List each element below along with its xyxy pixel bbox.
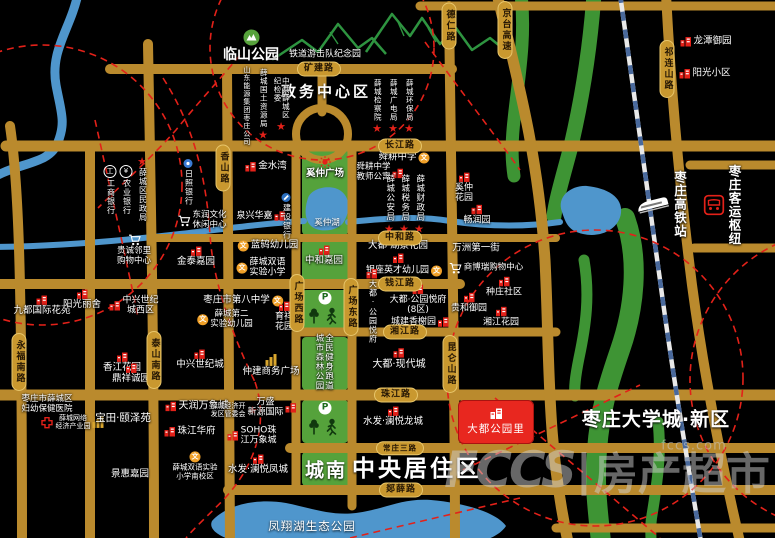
poi-guotu-ziyuanju: 薛城国土资源局★	[258, 68, 268, 140]
poi-label: 纪检委	[273, 77, 281, 120]
poi-shuiwuju: 薛城税务局★	[399, 174, 409, 234]
poi-label: 景惠嘉园	[111, 470, 149, 481]
star-icon: ★	[258, 129, 268, 140]
parking-icon: P	[319, 292, 332, 305]
poi-label: 宝田·颐泽苑	[95, 412, 151, 424]
poi-zhongxing-shijicheng: 中兴世纪城	[176, 349, 224, 371]
building-icon	[318, 245, 329, 255]
poi-label: 新源国际	[247, 408, 283, 418]
poi-xizhong-plaza: 奚仲广场	[306, 156, 344, 180]
poi-label: 薛城区民政局	[138, 168, 147, 222]
star-icon: ★	[137, 156, 147, 167]
road-label-kunlunshan: 昆仑山路	[443, 335, 458, 393]
poi-label: 休闲中心	[192, 221, 226, 231]
map-canvas: 矿建路长江路中和路钱江路湘江路珠江路常庄三路郯薛路德仁路京台高速祁连山路香山路永…	[0, 0, 775, 538]
park-icon	[243, 29, 260, 46]
poi-guicheng-mall: 贵诚邻里购物中心	[117, 233, 151, 267]
poi-jinghui-jiayuan: 景惠嘉园	[111, 470, 149, 481]
building-icon	[245, 162, 256, 172]
poi-label: 薛城环保局	[405, 79, 413, 122]
poi-park-south-parking: P	[319, 402, 332, 415]
poi-yangguang-lishe: 阳光丽舍	[63, 289, 101, 311]
fitness-trail-icon	[308, 419, 342, 436]
poi-label: 中兴世纪城	[176, 360, 224, 371]
poi-shangborui-mall: 商博瑞购物中心	[449, 262, 524, 275]
road-label-xiangjiang: 湘江路	[383, 325, 427, 340]
area-label-tiedao-park: 铁道游击队纪念园	[289, 47, 361, 60]
building-icon	[36, 295, 47, 305]
road-label-changzhuang: 常庄三路	[376, 441, 424, 455]
poi-soho-wanxiang: SOHO珠江万象城	[227, 426, 276, 447]
poi-linshan-park: 临山公园	[223, 29, 279, 63]
poi-park-south-fitness	[308, 419, 342, 436]
poi-dongrun-center: 东润文化休闲中心	[177, 211, 226, 231]
poi-jinshuiwan: 金水湾	[245, 162, 287, 173]
building-icon	[490, 408, 503, 419]
star-icon: ★	[372, 122, 382, 133]
poi-label: 奚仲	[455, 183, 473, 193]
poi-label: 日照银行	[184, 170, 193, 206]
shopping-cart-icon	[177, 215, 190, 228]
poi-gonganju: 薛城公安局★	[384, 174, 394, 234]
area-label-fengxianghu: 凤翔湖生态公园	[268, 518, 356, 534]
poi-shandong-nengyuan: 山东能源集团枣庄公司	[242, 66, 250, 146]
road-label-gcxi: 广场西路	[290, 274, 305, 332]
poi-dadu-xiandaicheng: 大都·现代城	[372, 348, 425, 371]
building-icon	[164, 427, 175, 437]
poi-label: 城西区	[127, 306, 154, 316]
poi-label: 珠江华府	[177, 427, 215, 438]
poi-label: 万洲第一街	[452, 244, 500, 255]
building-icon	[116, 352, 127, 362]
building-icon	[227, 431, 238, 441]
poi-zhongzhuang-shequ: 种庄社区	[486, 276, 522, 297]
poi-label: 畅润园	[463, 215, 490, 225]
bank-dot-icon	[183, 159, 193, 169]
road-label-deren: 德仁路	[442, 3, 457, 50]
poi-label: 仲建商务广场	[242, 367, 299, 378]
watermark-separator: |	[576, 445, 592, 496]
poi-xiangjiang-huayuan: 湘江花园	[483, 306, 519, 327]
poi-label: 建设银行	[282, 204, 291, 240]
poi-jijianwei: 中共薛城区纪检委★	[273, 77, 290, 132]
building-icon	[679, 69, 690, 79]
area-label-zhengwu-center: 政务中心区	[281, 81, 371, 102]
school-icon: 文	[419, 153, 430, 164]
poi-zhonghe-jiayuan: 中和嘉园	[305, 245, 343, 267]
poi-label: 薛城税务局	[399, 174, 409, 222]
poi-label: 水发·澜悦凤城	[228, 465, 288, 476]
poi-jiudu-huayuan: 九都国际花苑	[13, 295, 70, 317]
shopping-cart-icon	[127, 233, 140, 246]
poi-label: 江万象城	[240, 436, 276, 446]
building-icon	[458, 172, 469, 182]
poi-rizhao-bank: 日照银行	[183, 159, 193, 206]
poi-guihe-yuyuan: 贵和御园	[451, 292, 487, 313]
star-icon: ★	[276, 120, 286, 131]
school-icon: 文	[238, 241, 249, 252]
school-icon: 文	[190, 451, 201, 462]
building-icon	[166, 401, 177, 411]
poi-xc2-kindergarten: 文薛城第二实验幼儿园	[197, 310, 253, 330]
poi-shuangyu-school: 文薛城双语实验小学	[236, 258, 285, 279]
poi-label: 经济产业园	[56, 422, 91, 430]
poi-label: 枣庄高铁站	[672, 170, 686, 238]
road-label-zhonghe: 中和路	[378, 231, 422, 246]
poi-label: 枣庄市第八中学	[203, 296, 270, 307]
poi-zhujiang-huafu: 珠江华府	[164, 427, 215, 438]
road-label-zhujiang: 珠江路	[374, 388, 418, 403]
poi-shuangyu-south: 文薛城双语实验小学南校区	[173, 451, 218, 480]
building-icon	[367, 269, 378, 279]
poi-zhongjian-plaza: 仲建商务广场	[242, 354, 299, 378]
area-label-daxuecheng: 枣庄大学城·新区	[582, 405, 730, 432]
poi-label: 发区管委会	[211, 410, 246, 418]
poi-label: 薛城双语	[249, 258, 285, 268]
school-icon: 文	[197, 315, 208, 326]
watermark-logo: FCCS | 房产超市	[444, 438, 770, 502]
poi-changrunyuan: 畅润园	[463, 204, 490, 225]
poi-label: 购物中心	[117, 257, 151, 267]
poi-label: 贵和御园	[451, 303, 487, 313]
road-label-gcdong: 广场东路	[344, 278, 359, 336]
building-icon	[463, 292, 474, 302]
poi-label: 大都·现代城	[372, 359, 425, 371]
poi-baotian-yizeyuan: 宝田·颐泽苑	[95, 412, 151, 424]
shopping-cart-icon	[449, 262, 462, 275]
watermark-cjk: 房产超市	[594, 438, 770, 502]
poi-label: 九都国际花苑	[13, 306, 70, 317]
building-icon	[498, 276, 509, 286]
road-label-jingtai: 京台高速	[498, 1, 513, 59]
poi-shungeng-apartment: 舜耕中学教师公寓	[356, 163, 403, 183]
building-icon	[253, 454, 264, 464]
poi-yangguang-xiaoqu: 阳光小区	[679, 69, 730, 80]
building-gold-icon	[265, 354, 277, 366]
poi-keyun-hub: 枣庄客运枢纽	[704, 165, 741, 246]
building-icon	[495, 306, 506, 316]
poi-wanzhou-street: 万洲第一街	[452, 244, 500, 255]
poi-label: 蓝鸫幼儿园	[251, 241, 299, 252]
train-icon	[634, 194, 670, 214]
poi-no8-school: 枣庄市第八中学文	[203, 296, 283, 307]
building-icon	[76, 289, 87, 299]
poi-label: 中共薛城区	[281, 77, 289, 120]
building-icon	[393, 253, 404, 263]
poi-label: 大都·公园悦府	[368, 280, 377, 344]
building-icon	[394, 348, 405, 358]
poi-label: 商博瑞购物中心	[464, 263, 524, 273]
poi-label: 种庄社区	[486, 287, 522, 297]
poi-label: 金泰嘉园	[177, 257, 215, 268]
building-icon	[388, 406, 399, 416]
poi-label: 阳光小区	[692, 69, 730, 80]
road-label-kuangjian: 矿建路	[297, 62, 341, 77]
poi-forest-park-text: 全民健身跑道城市森林公园	[313, 334, 332, 391]
bank-ccb-icon	[281, 193, 291, 203]
poi-label: 小学南校区	[176, 472, 214, 481]
poi-label: 奚仲广场	[306, 169, 344, 180]
featured-property-label: 大都公园里	[467, 421, 525, 436]
poi-label: 中和嘉园	[305, 256, 343, 267]
poi-dadu-yuefu-v: 大都·公园悦府	[367, 269, 378, 344]
building-icon	[278, 301, 289, 311]
poi-park-north-parking: P	[319, 292, 332, 305]
poi-zhongxing-xiqu: 中兴世纪城西区	[109, 296, 158, 317]
poi-label: 大都·公园悦府	[390, 295, 447, 305]
road-label-qianjiang: 钱江路	[378, 277, 422, 292]
poi-jintai-jiayuan: 金泰嘉园	[177, 246, 215, 268]
hospital-cross-icon	[40, 416, 53, 429]
sun-icon	[319, 156, 331, 168]
poi-label: 工商银行	[106, 179, 115, 215]
poi-label: 薛城经济开	[211, 402, 246, 410]
poi-label: 鼎祥诚园	[112, 374, 150, 385]
poi-label: 山东能源集团枣庄公司	[242, 66, 250, 146]
road-label-taishannan: 泰山南路	[147, 331, 162, 389]
poi-label: 泉兴华嘉	[236, 211, 272, 221]
fitness-trail-icon	[308, 308, 342, 325]
poi-dingxiang-chengyuan: 鼎祥诚园	[112, 363, 150, 385]
area-label-xizhonghu: 奚仲湖	[314, 216, 340, 228]
building-icon	[125, 363, 136, 373]
poi-label: 薛城网络	[59, 414, 87, 422]
bank-icon: ¥	[120, 165, 133, 178]
poi-label: 薛城财政局	[414, 174, 424, 222]
poi-label: 湘江花园	[483, 317, 519, 327]
poi-label: 龙潭御园	[693, 37, 731, 48]
watermark-latin: FCCS	[444, 441, 574, 499]
poi-label: 枣庄客运枢纽	[727, 165, 741, 246]
poi-longtan-yuyuan: 龙潭御园	[680, 37, 731, 48]
poi-icbc-bank: 工工商银行	[104, 165, 117, 215]
poi-label: SOHO珠	[241, 426, 277, 436]
poi-label: 农业银行	[122, 179, 131, 215]
poi-minzhengju: ★薛城区民政局	[137, 156, 147, 222]
poi-caizhengju: 薛城财政局★	[414, 174, 424, 234]
poi-park-north-fitness	[308, 308, 342, 325]
road-label-tanxue: 郯薛路	[379, 483, 423, 498]
parking-icon: P	[319, 402, 332, 415]
building-icon	[109, 301, 120, 311]
poi-label: 花园	[455, 194, 473, 204]
bank-icon: 工	[104, 165, 117, 178]
road-label-changjiang: 长江路	[378, 139, 422, 154]
road-label-xiangshan: 香山路	[216, 145, 231, 192]
poi-guangdianju: 薛城广电局★	[388, 79, 398, 134]
poi-label: 实验幼儿园	[210, 320, 253, 330]
building-icon	[190, 246, 201, 256]
poi-label: 临山公园	[223, 47, 279, 63]
poi-landun-kindergarten: 文蓝鸫幼儿园	[238, 241, 299, 252]
poi-label: 实验小学	[249, 268, 285, 278]
star-icon: ★	[404, 122, 414, 133]
poi-label: 薛城广电局	[389, 79, 397, 122]
poi-label: 薛城检察院	[373, 79, 381, 122]
poi-label: (8区)	[407, 306, 429, 316]
poi-abc-bank: ¥农业银行	[120, 165, 133, 215]
building-icon	[286, 403, 297, 413]
poi-label: 薛城国土资源局	[259, 68, 267, 128]
star-icon: ★	[388, 122, 398, 133]
building-icon	[471, 204, 482, 214]
poi-ccb-bank: 建设银行	[281, 193, 291, 240]
school-icon: 文	[431, 266, 442, 277]
poi-quanxing-huajia: 泉兴华嘉	[236, 211, 285, 221]
poi-label: 万盛	[256, 398, 274, 408]
building-icon	[680, 37, 691, 47]
poi-shuifa-fengcheng: 水发·澜悦凤城	[228, 454, 288, 476]
poi-jianchayuan: 薛城检察院★	[372, 79, 382, 134]
poi-label: 薛城公安局	[384, 174, 394, 222]
poi-label: 金水湾	[258, 162, 287, 173]
bus-icon	[704, 195, 725, 216]
poi-xizhong-huayuan: 奚仲花园	[455, 172, 473, 204]
poi-huanbaoju: 薛城环保局★	[404, 79, 414, 134]
school-icon: 文	[236, 263, 247, 274]
area-label-chengnan: 城南	[305, 456, 347, 483]
building-icon	[194, 349, 205, 359]
poi-label: 水发·澜悦龙城	[363, 417, 423, 428]
poi-label: 阳光丽舍	[63, 300, 101, 311]
building-icon	[438, 317, 449, 327]
road-label-yongfunan: 永福南路	[12, 333, 27, 391]
poi-label: 城市森林公园	[313, 334, 323, 391]
poi-label: 中兴世纪	[122, 296, 158, 306]
poi-shuifa-longcheng: 水发·澜悦龙城	[363, 406, 423, 428]
road-label-qilianshan: 祁连山路	[660, 40, 675, 98]
poi-gaotie-station: 枣庄高铁站	[634, 170, 686, 238]
poi-wansheng-guoji: 万盛新源国际	[247, 398, 296, 419]
